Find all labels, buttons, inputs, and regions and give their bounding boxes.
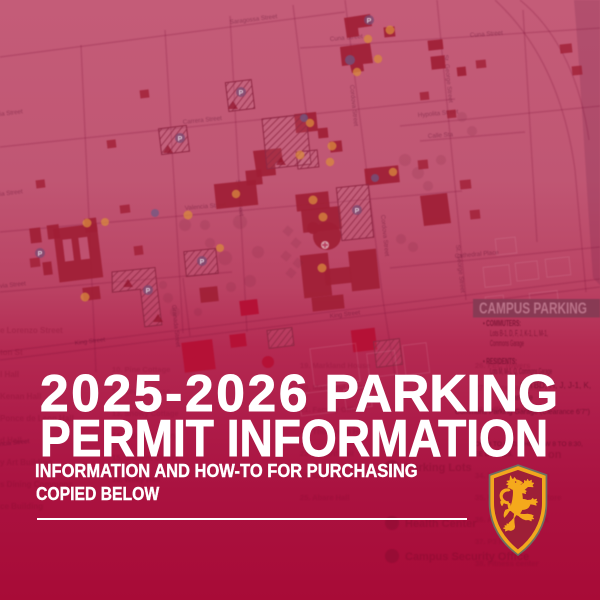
svg-text:ia Street: ia Street [0,108,23,118]
svg-text:d Hall: d Hall [0,436,22,445]
svg-text:25. Abare Hall: 25. Abare Hall [300,493,349,502]
svg-text:Health Center: Health Center [405,518,477,530]
svg-text:P: P [355,208,360,215]
svg-text:• COMMUTERS:: • COMMUTERS: [483,319,521,328]
svg-text:Kenan Hall: Kenan Hall [0,392,41,401]
svg-text:CAMPUS PARKING: CAMPUS PARKING [479,301,587,318]
svg-text:P: P [38,251,43,258]
svg-text:King Street: King Street [74,336,106,347]
svg-text:ton St: ton St [0,348,23,357]
svg-text:via Street: via Street [0,280,26,290]
svg-text:Cordova Street: Cordova Street [379,214,390,256]
svg-text:P: P [200,259,205,266]
svg-text:e Lorenzo Street: e Lorenzo Street [0,326,63,335]
svg-text:Cuna Street: Cuna Street [470,30,504,39]
svg-text:Cordova Street: Cordova Street [348,84,359,126]
svg-text:ia Street: ia Street [0,188,23,198]
svg-text:P: P [146,288,151,295]
svg-text:P: P [367,18,372,25]
svg-text:l Hall: l Hall [0,370,19,379]
svg-text:P: P [178,136,183,143]
svg-text:Commons Garage: Commons Garage [490,339,524,348]
svg-text:on: on [548,449,562,461]
svg-text:38. Fitness center: 38. Fitness center [475,559,538,568]
svg-text:Lots B-1, D, F, J, K-1, L, M-1: Lots B-1, D, F, J, K-1, L, M-1, [490,329,548,338]
svg-text:P: P [239,90,244,97]
